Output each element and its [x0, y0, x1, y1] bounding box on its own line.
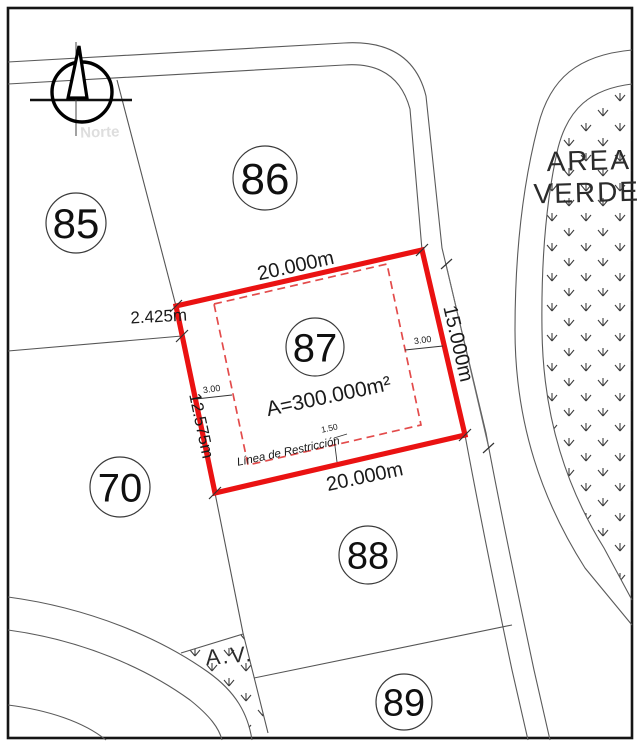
green-area-label-line2: VERDE — [533, 176, 640, 210]
north-watermark-text: Norte — [80, 123, 120, 141]
site-plan-page: 20.000m 20.000m 15.000m 12.575m 2.425m 3… — [0, 0, 640, 746]
lot87-number: 87 — [293, 326, 338, 370]
lot89-number: 89 — [383, 683, 425, 725]
small-green-area-label: A.V. — [205, 641, 255, 670]
lot86-number: 86 — [241, 155, 290, 204]
site-plan-drawing: 20.000m 20.000m 15.000m 12.575m 2.425m 3… — [0, 0, 640, 746]
dim-left-upper-label: 2.425m — [130, 306, 188, 328]
lot70-number: 70 — [98, 466, 143, 510]
lot85-number: 85 — [53, 200, 100, 247]
green-area-label-line1: AREA — [546, 144, 631, 177]
lot88-number: 88 — [347, 536, 389, 578]
